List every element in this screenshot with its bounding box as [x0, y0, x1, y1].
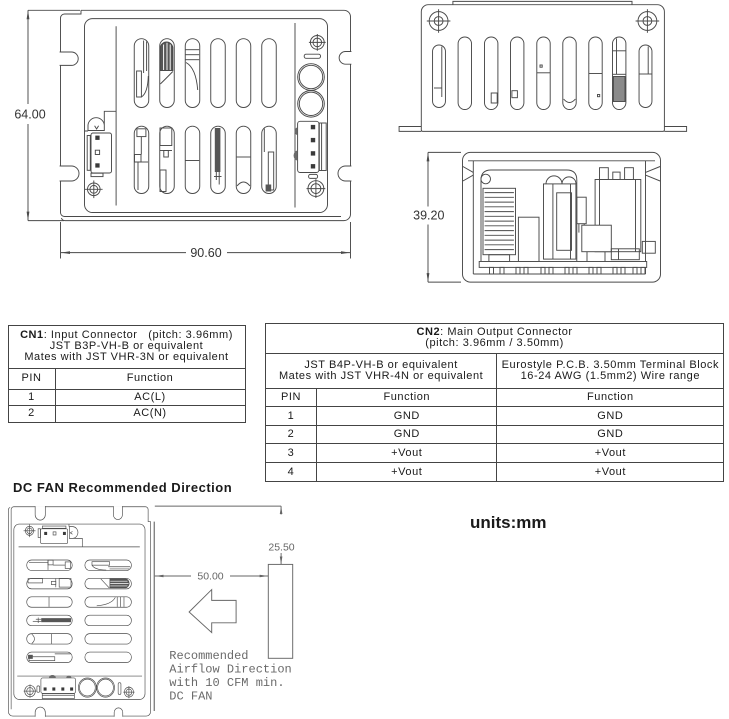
- svg-text:Recommended: Recommended: [169, 649, 248, 663]
- svg-text:39.20: 39.20: [413, 209, 444, 223]
- svg-text:DC FAN: DC FAN: [169, 690, 212, 704]
- svg-text:with 10 CFM min.: with 10 CFM min.: [169, 676, 284, 690]
- svg-text:64.00: 64.00: [14, 108, 45, 122]
- svg-text:Airflow Direction: Airflow Direction: [169, 663, 291, 677]
- svg-text:50.00: 50.00: [197, 571, 223, 583]
- svg-text:90.60: 90.60: [190, 246, 221, 260]
- svg-text:25.50: 25.50: [268, 542, 294, 554]
